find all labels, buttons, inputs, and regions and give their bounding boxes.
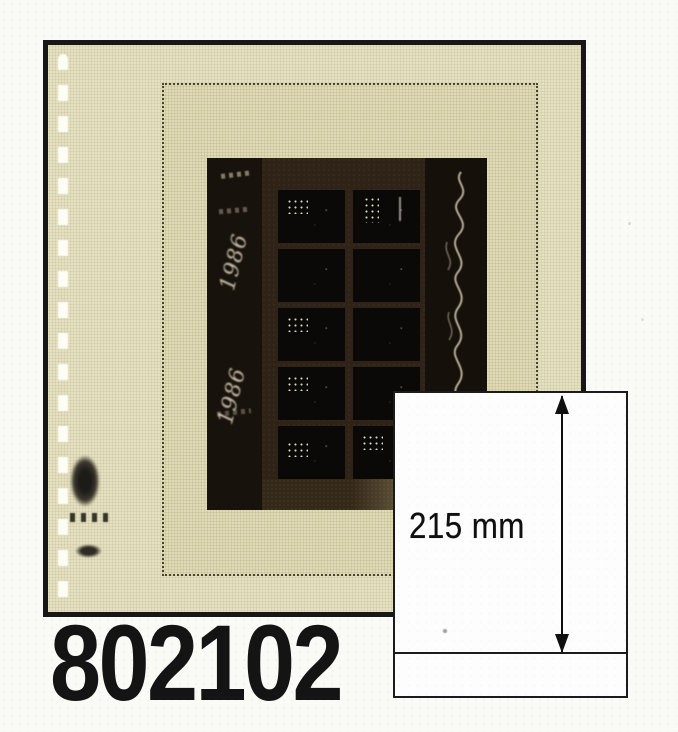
stamp <box>353 249 420 302</box>
punch-holes-icon <box>58 54 68 602</box>
selvage-year-label: 1986 <box>213 365 250 427</box>
scan-speck <box>641 318 644 321</box>
stamp <box>278 426 345 479</box>
measurement-label: 215 mm <box>409 505 525 547</box>
stamp <box>278 308 345 361</box>
measure-arrow-icon <box>553 396 571 652</box>
stamp <box>278 367 345 420</box>
measurement-overlay: 215 mm <box>393 391 628 698</box>
sheet-left-selvage: 1986 1986 <box>207 158 262 510</box>
ink-stamp-mark <box>75 544 102 558</box>
selvage-mark <box>219 207 249 215</box>
scanned-product-photo: 1986 1986 <box>0 0 678 732</box>
selvage-year-label: 1986 <box>215 231 252 293</box>
foil-strip-line <box>395 652 626 654</box>
product-code: 802102 <box>50 609 341 717</box>
stamp <box>353 308 420 361</box>
scan-speck <box>628 222 631 225</box>
selvage-mark <box>221 170 253 179</box>
arrow-line <box>561 396 563 652</box>
scan-speck <box>443 629 447 633</box>
arrowhead-down-icon <box>555 634 569 653</box>
ink-stamp-mark <box>70 513 108 522</box>
stamp <box>278 249 345 302</box>
ink-stamp-mark <box>70 455 100 507</box>
stamp <box>278 190 345 243</box>
stamp <box>353 190 420 243</box>
